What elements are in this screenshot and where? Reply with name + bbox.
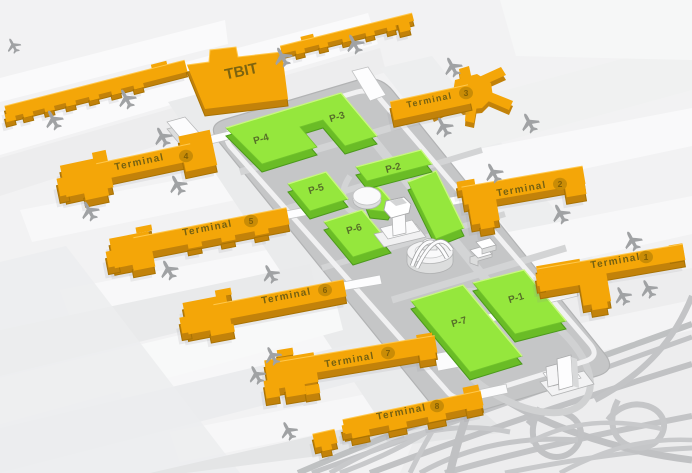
svg-text:4: 4 — [184, 151, 189, 161]
svg-text:2: 2 — [558, 179, 563, 189]
svg-text:5: 5 — [249, 216, 254, 226]
svg-text:6: 6 — [323, 285, 328, 295]
svg-text:1: 1 — [644, 252, 649, 262]
svg-text:3: 3 — [464, 88, 469, 98]
svg-text:8: 8 — [435, 401, 440, 411]
svg-text:7: 7 — [386, 348, 391, 358]
